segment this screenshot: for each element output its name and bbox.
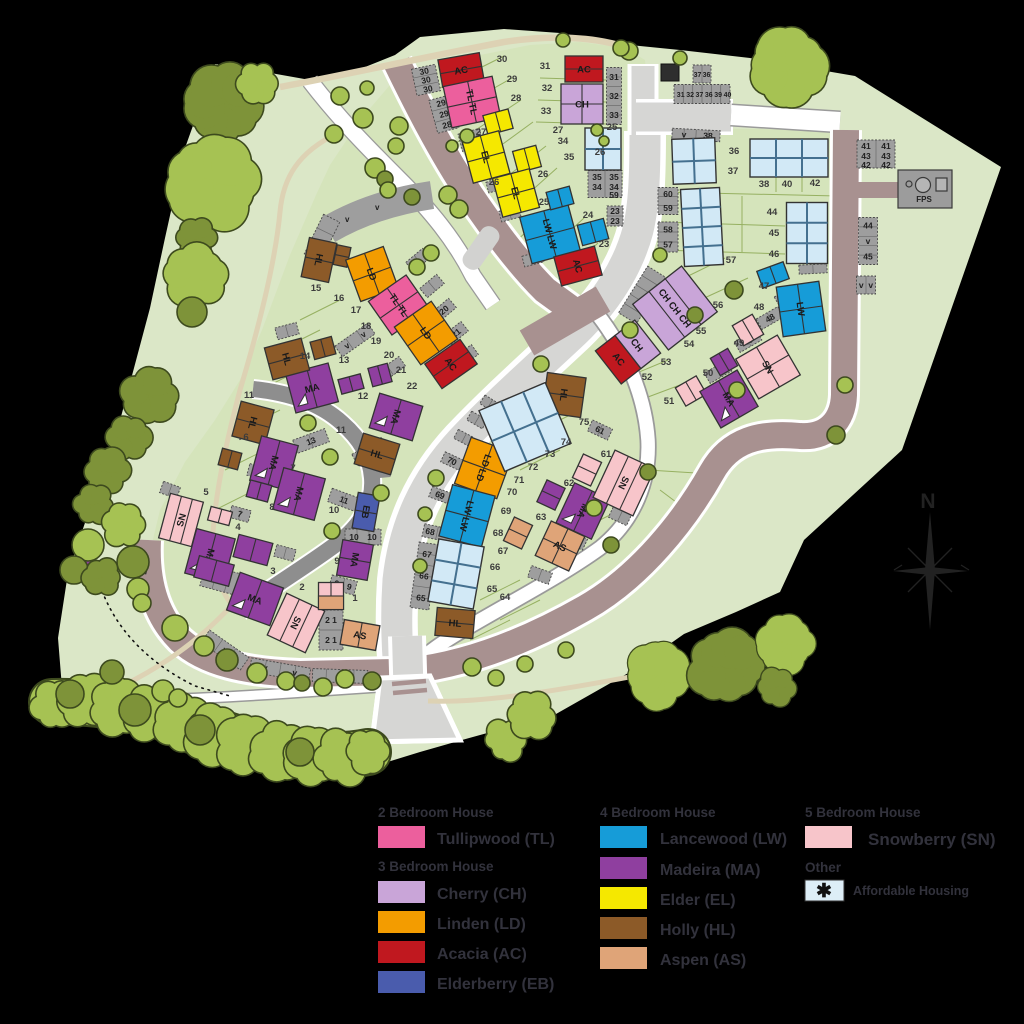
svg-text:40: 40 — [782, 179, 793, 190]
svg-text:42: 42 — [861, 160, 871, 170]
svg-text:Linden (LD): Linden (LD) — [437, 916, 526, 933]
svg-text:FPS: FPS — [916, 195, 932, 204]
svg-text:65: 65 — [416, 592, 427, 603]
svg-text:11: 11 — [336, 425, 347, 436]
svg-text:63: 63 — [536, 512, 547, 523]
svg-text:45: 45 — [769, 228, 780, 239]
svg-text:25: 25 — [607, 122, 618, 133]
svg-text:47: 47 — [759, 281, 770, 292]
svg-text:34: 34 — [592, 182, 602, 192]
svg-text:23: 23 — [610, 216, 620, 226]
svg-text:3 Bedroom House: 3 Bedroom House — [378, 859, 494, 874]
svg-text:31: 31 — [609, 72, 619, 82]
svg-text:v: v — [868, 280, 873, 290]
svg-text:v: v — [375, 203, 380, 212]
svg-text:19: 19 — [371, 336, 382, 347]
svg-text:21: 21 — [396, 365, 407, 376]
svg-text:Elderberry (EB): Elderberry (EB) — [437, 976, 554, 993]
svg-text:64: 64 — [500, 592, 511, 603]
svg-text:25: 25 — [539, 197, 550, 208]
svg-text:23: 23 — [599, 239, 610, 250]
svg-text:HL: HL — [557, 388, 570, 402]
svg-text:LW: LW — [794, 301, 807, 317]
svg-text:75: 75 — [579, 417, 590, 428]
svg-text:67: 67 — [498, 546, 509, 557]
svg-text:2 Bedroom House: 2 Bedroom House — [378, 805, 494, 820]
svg-text:17: 17 — [351, 305, 362, 316]
svg-text:Lancewood (LW): Lancewood (LW) — [660, 831, 787, 848]
svg-text:N: N — [920, 490, 935, 513]
svg-text:6: 6 — [243, 432, 248, 443]
svg-text:Holly (HL): Holly (HL) — [660, 922, 736, 939]
svg-text:CH: CH — [575, 100, 589, 111]
svg-text:35: 35 — [592, 172, 602, 182]
svg-text:59: 59 — [609, 190, 619, 200]
svg-text:7: 7 — [290, 463, 295, 474]
svg-text:23: 23 — [610, 206, 620, 216]
svg-text:53: 53 — [661, 357, 672, 368]
svg-text:14: 14 — [300, 351, 311, 362]
svg-text:33: 33 — [609, 110, 619, 120]
svg-text:2: 2 — [299, 582, 304, 593]
svg-text:26: 26 — [595, 147, 606, 158]
svg-text:11: 11 — [244, 390, 255, 401]
svg-text:37: 37 — [696, 92, 704, 99]
svg-text:69: 69 — [501, 506, 512, 517]
svg-text:20: 20 — [384, 350, 395, 361]
svg-text:41: 41 — [861, 141, 871, 151]
svg-text:49: 49 — [734, 338, 745, 349]
svg-text:72: 72 — [528, 462, 539, 473]
svg-text:Aspen (AS): Aspen (AS) — [660, 952, 746, 969]
svg-text:Elder (EL): Elder (EL) — [660, 892, 736, 909]
svg-text:AS: AS — [352, 629, 367, 642]
svg-text:13: 13 — [339, 355, 350, 366]
svg-text:42: 42 — [881, 160, 891, 170]
svg-text:36: 36 — [705, 92, 713, 99]
svg-text:30: 30 — [497, 54, 508, 65]
svg-text:32: 32 — [609, 91, 619, 101]
svg-text:66: 66 — [490, 562, 501, 573]
svg-text:54: 54 — [684, 339, 695, 350]
svg-text:12: 12 — [358, 391, 369, 402]
svg-text:70: 70 — [507, 487, 518, 498]
svg-text:15: 15 — [311, 283, 322, 294]
svg-text:Madeira (MA): Madeira (MA) — [660, 862, 760, 879]
svg-text:71: 71 — [514, 475, 525, 486]
svg-text:57: 57 — [726, 255, 737, 266]
svg-text:58: 58 — [663, 225, 673, 235]
svg-text:40: 40 — [724, 92, 732, 99]
svg-text:✱: ✱ — [816, 881, 832, 902]
svg-text:57: 57 — [663, 240, 673, 250]
svg-text:Other: Other — [805, 860, 842, 875]
svg-text:68: 68 — [493, 528, 504, 539]
svg-text:62: 62 — [564, 478, 575, 489]
svg-text:Affordable Housing: Affordable Housing — [853, 884, 969, 898]
svg-text:35: 35 — [564, 152, 575, 163]
svg-text:v: v — [866, 236, 871, 246]
svg-text:16: 16 — [334, 293, 345, 304]
svg-text:33: 33 — [541, 106, 552, 117]
svg-text:50: 50 — [703, 368, 714, 379]
svg-text:60: 60 — [663, 189, 673, 199]
svg-text:73: 73 — [545, 449, 556, 460]
svg-text:31: 31 — [540, 61, 551, 72]
svg-text:55: 55 — [696, 326, 707, 337]
svg-text:Tullipwood (TL): Tullipwood (TL) — [437, 831, 555, 848]
svg-text:2 1: 2 1 — [325, 615, 337, 625]
svg-text:Cherry (CH): Cherry (CH) — [437, 886, 527, 903]
svg-text:56: 56 — [713, 300, 724, 311]
svg-text:61: 61 — [601, 449, 612, 460]
svg-text:4: 4 — [235, 522, 241, 533]
svg-text:27: 27 — [553, 125, 564, 136]
svg-text:22: 22 — [407, 381, 418, 392]
svg-text:Acacia (AC): Acacia (AC) — [437, 946, 527, 963]
svg-text:31: 31 — [677, 92, 685, 99]
svg-text:44: 44 — [767, 207, 778, 218]
svg-text:37: 37 — [694, 72, 702, 79]
svg-text:28: 28 — [511, 93, 522, 104]
svg-text:46: 46 — [769, 249, 780, 260]
svg-text:29: 29 — [507, 74, 518, 85]
svg-text:38: 38 — [759, 179, 770, 190]
svg-text:26: 26 — [538, 169, 549, 180]
svg-text:10: 10 — [367, 532, 377, 542]
svg-text:52: 52 — [642, 372, 653, 383]
svg-text:32: 32 — [542, 83, 553, 94]
svg-text:v: v — [859, 280, 864, 290]
svg-text:42: 42 — [810, 178, 821, 189]
svg-text:2 1: 2 1 — [325, 635, 337, 645]
svg-text:37: 37 — [728, 166, 739, 177]
svg-text:36: 36 — [729, 146, 740, 157]
svg-text:18: 18 — [361, 321, 372, 332]
svg-text:9: 9 — [334, 556, 339, 567]
svg-text:45: 45 — [863, 252, 873, 262]
svg-text:EB: EB — [358, 504, 371, 519]
svg-text:3: 3 — [270, 566, 275, 577]
svg-text:36: 36 — [703, 72, 711, 79]
svg-text:74: 74 — [561, 437, 572, 448]
svg-text:51: 51 — [664, 396, 675, 407]
svg-text:5: 5 — [203, 487, 209, 498]
svg-text:41: 41 — [881, 141, 891, 151]
svg-text:AC: AC — [577, 65, 591, 76]
svg-text:10: 10 — [329, 505, 340, 516]
svg-text:44: 44 — [863, 220, 873, 230]
svg-text:4 Bedroom House: 4 Bedroom House — [600, 805, 716, 820]
svg-text:5 Bedroom House: 5 Bedroom House — [805, 805, 921, 820]
svg-text:48: 48 — [754, 302, 765, 313]
svg-text:34: 34 — [558, 136, 569, 147]
svg-text:Snowberry (SN): Snowberry (SN) — [868, 830, 996, 849]
svg-text:32: 32 — [686, 92, 694, 99]
svg-text:35: 35 — [609, 172, 619, 182]
svg-text:24: 24 — [583, 210, 594, 221]
svg-text:v: v — [345, 215, 350, 224]
svg-text:27: 27 — [476, 127, 487, 138]
svg-text:67: 67 — [422, 549, 433, 560]
svg-text:v: v — [681, 129, 687, 139]
svg-text:HL: HL — [448, 618, 462, 630]
svg-text:39: 39 — [714, 92, 722, 99]
svg-text:65: 65 — [487, 584, 498, 595]
svg-text:1: 1 — [352, 593, 358, 604]
svg-text:26: 26 — [489, 177, 500, 188]
svg-text:59: 59 — [663, 203, 673, 213]
svg-text:8: 8 — [269, 502, 274, 513]
